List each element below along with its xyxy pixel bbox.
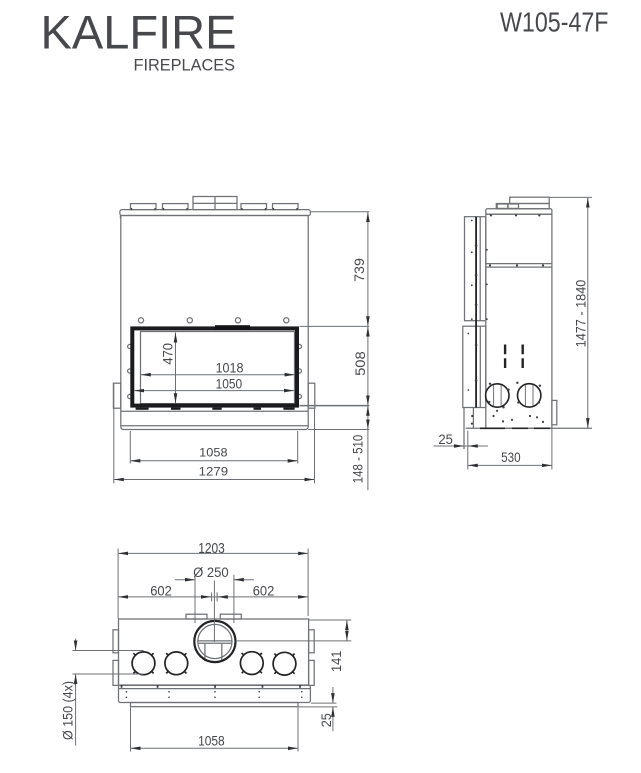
svg-text:1279: 1279 xyxy=(199,465,228,479)
svg-text:1018: 1018 xyxy=(216,361,244,376)
svg-text:KALFIRE: KALFIRE xyxy=(41,7,237,60)
svg-text:602: 602 xyxy=(150,583,172,599)
svg-text:1477 - 1840: 1477 - 1840 xyxy=(572,279,588,347)
svg-text:25: 25 xyxy=(319,713,334,727)
svg-text:Ø 250: Ø 250 xyxy=(193,565,229,581)
svg-text:602: 602 xyxy=(253,583,275,599)
svg-text:FIREPLACES: FIREPLACES xyxy=(134,56,236,74)
svg-text:Ø 150 (4x): Ø 150 (4x) xyxy=(59,681,75,740)
svg-text:1058: 1058 xyxy=(198,733,225,749)
svg-text:1203: 1203 xyxy=(198,540,225,557)
svg-text:1050: 1050 xyxy=(216,377,243,392)
svg-text:25: 25 xyxy=(438,431,453,447)
svg-text:508: 508 xyxy=(352,351,368,376)
svg-text:1058: 1058 xyxy=(199,446,228,460)
svg-text:W105-47F: W105-47F xyxy=(500,6,609,37)
svg-text:148 - 510: 148 - 510 xyxy=(350,435,365,483)
svg-text:739: 739 xyxy=(351,258,367,282)
svg-text:530: 530 xyxy=(501,450,521,465)
svg-text:141: 141 xyxy=(328,650,344,672)
svg-text:470: 470 xyxy=(160,343,175,365)
